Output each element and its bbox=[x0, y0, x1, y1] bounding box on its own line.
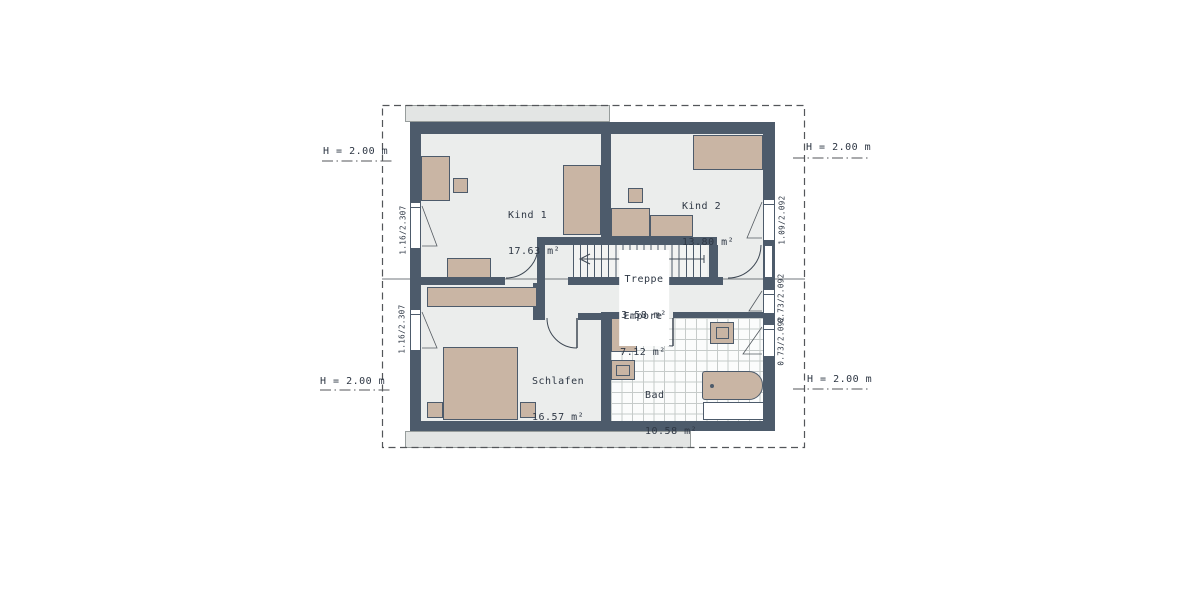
kind1-bed bbox=[421, 156, 450, 201]
window-kind2 bbox=[763, 200, 775, 240]
room-name: Kind 2 bbox=[682, 201, 734, 213]
room-area: 10.58 m² bbox=[645, 426, 697, 438]
room-name: Treppe bbox=[621, 274, 667, 286]
height-label-bottom-left: H = 2.00 m bbox=[320, 376, 385, 387]
bad-bathtub bbox=[702, 371, 763, 400]
wall-schlafen-door-east bbox=[578, 313, 601, 320]
wall-exterior-right-4 bbox=[763, 356, 775, 431]
room-name: Kind 1 bbox=[508, 210, 560, 222]
window-schlafen bbox=[410, 310, 421, 350]
room-area: 16.57 m² bbox=[532, 412, 584, 424]
plan-linework bbox=[0, 0, 1200, 600]
kind2-bed bbox=[693, 135, 763, 170]
height-label-top-right: H = 2.00 m bbox=[806, 142, 871, 153]
window-swing-right-bottom bbox=[743, 327, 762, 354]
wall-exterior-left-2 bbox=[410, 248, 421, 310]
window-swing-right-middle bbox=[749, 291, 762, 311]
wall-exterior-right-1 bbox=[763, 122, 775, 200]
height-label-bottom-right: H = 2.00 m bbox=[807, 374, 872, 385]
wall-exterior-bottom bbox=[410, 421, 775, 431]
wall-kind1-kind2 bbox=[601, 134, 611, 237]
schlafen-bed bbox=[443, 347, 518, 420]
wall-exterior-left-3 bbox=[410, 350, 421, 431]
bad-washbasin-top-bowl bbox=[716, 327, 729, 339]
window-label-left-bottom: 1.16/2.307 bbox=[398, 304, 407, 353]
room-area: 7.12 m² bbox=[620, 347, 666, 359]
door-arc-schlafen bbox=[547, 318, 577, 348]
wall-kind2-door-west bbox=[717, 277, 723, 285]
height-label-top-left: H = 2.00 m bbox=[323, 146, 388, 157]
window-swing-left-top bbox=[422, 206, 437, 246]
kind2-desk-a bbox=[611, 208, 650, 237]
window-label-left-top: 1.16/2.307 bbox=[399, 205, 408, 254]
room-name: Empore bbox=[620, 311, 666, 323]
kind1-dresser bbox=[447, 258, 491, 278]
wall-bad-north-2 bbox=[673, 312, 763, 318]
room-name: Bad bbox=[645, 390, 697, 402]
kind2-nightstand bbox=[628, 188, 643, 203]
kind1-wardrobe bbox=[563, 165, 601, 235]
room-label-kind2: Kind 2 13.80 m² bbox=[682, 177, 734, 273]
room-label-schlafen: Schlafen 16.57 m² bbox=[532, 352, 584, 448]
bad-bathtub-drain bbox=[710, 384, 714, 388]
wall-exterior-right-3 bbox=[763, 313, 775, 325]
room-name: Schlafen bbox=[532, 376, 584, 388]
wall-exterior-top bbox=[410, 122, 775, 134]
floor-plan-canvas: Kind 1 17.63 m² Kind 2 13.80 m² Treppe 3… bbox=[0, 0, 1200, 600]
window-kind1 bbox=[410, 203, 421, 248]
window-label-right-bottom: 0.73/2.092 bbox=[777, 316, 786, 365]
bad-shower bbox=[703, 402, 764, 420]
wall-kind1-south bbox=[421, 277, 505, 285]
schlafen-wardrobe bbox=[427, 287, 537, 307]
wall-exterior-left-1 bbox=[410, 122, 421, 203]
window-label-right-middle: 0.73/2.092 bbox=[777, 273, 786, 322]
kind1-nightstand bbox=[453, 178, 468, 193]
room-area: 13.80 m² bbox=[682, 237, 734, 249]
window-bad bbox=[763, 325, 775, 356]
room-label-bad: Bad 10.58 m² bbox=[645, 366, 697, 462]
bad-washbasin-top bbox=[710, 322, 734, 344]
window-swing-left-bottom bbox=[422, 312, 437, 348]
schlafen-nightstand-left bbox=[427, 402, 443, 418]
window-empore bbox=[763, 290, 775, 313]
room-label-kind1: Kind 1 17.63 m² bbox=[508, 186, 560, 282]
room-area: 17.63 m² bbox=[508, 246, 560, 258]
wall-bad-west bbox=[601, 312, 611, 431]
door-leaf-kind2 bbox=[764, 245, 773, 278]
window-swing-right-top bbox=[747, 202, 762, 238]
window-label-right-top: 1.09/2.092 bbox=[778, 195, 787, 244]
